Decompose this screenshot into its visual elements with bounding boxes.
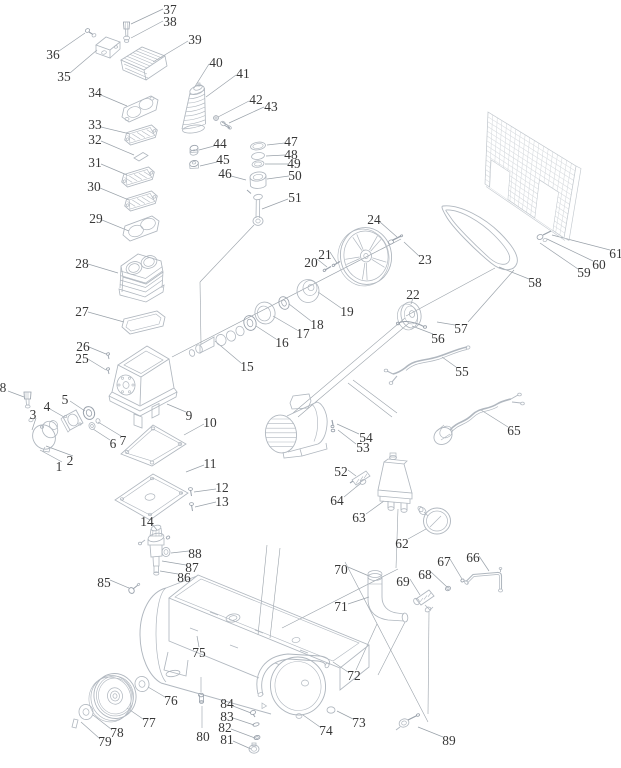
svg-text:10: 10 [203,415,217,430]
svg-text:80: 80 [196,729,210,744]
svg-text:88: 88 [188,546,202,561]
svg-text:20: 20 [304,255,318,270]
svg-text:72: 72 [347,668,360,683]
svg-text:73: 73 [352,715,366,730]
svg-text:59: 59 [577,265,591,280]
svg-text:28: 28 [75,256,89,271]
svg-text:26: 26 [76,339,90,354]
svg-text:64: 64 [330,493,344,508]
svg-text:8: 8 [0,380,7,395]
svg-text:36: 36 [46,47,60,62]
svg-text:18: 18 [310,317,324,332]
svg-text:39: 39 [188,32,202,47]
svg-text:24: 24 [367,212,381,227]
svg-text:16: 16 [275,335,289,350]
svg-text:52: 52 [334,464,347,479]
svg-text:27: 27 [75,304,89,319]
svg-text:15: 15 [240,359,254,374]
svg-text:84: 84 [220,696,234,711]
svg-text:13: 13 [215,494,229,509]
svg-text:67: 67 [437,554,451,569]
svg-text:50: 50 [288,168,302,183]
svg-text:65: 65 [507,423,521,438]
svg-text:2: 2 [67,453,74,468]
svg-text:71: 71 [334,599,347,614]
svg-text:69: 69 [396,574,410,589]
svg-text:87: 87 [185,560,199,575]
svg-text:41: 41 [236,66,249,81]
svg-text:6: 6 [110,436,117,451]
svg-text:34: 34 [88,85,102,100]
svg-text:12: 12 [215,480,228,495]
svg-text:75: 75 [192,645,206,660]
svg-text:42: 42 [249,92,262,107]
svg-text:35: 35 [57,69,71,84]
svg-text:19: 19 [340,304,354,319]
svg-text:61: 61 [609,246,621,261]
svg-text:46: 46 [218,166,232,181]
svg-text:89: 89 [442,733,456,748]
svg-text:4: 4 [44,399,51,414]
svg-text:62: 62 [395,536,408,551]
svg-text:77: 77 [142,715,156,730]
svg-text:22: 22 [406,287,419,302]
svg-text:23: 23 [418,252,432,267]
svg-text:56: 56 [431,331,445,346]
svg-text:45: 45 [216,152,230,167]
svg-text:51: 51 [288,190,301,205]
svg-text:44: 44 [213,136,227,151]
svg-text:33: 33 [88,117,102,132]
svg-text:30: 30 [87,179,101,194]
svg-text:1: 1 [56,459,63,474]
svg-text:85: 85 [97,575,111,590]
svg-text:31: 31 [88,155,101,170]
svg-text:21: 21 [318,247,331,262]
svg-text:32: 32 [88,132,101,147]
svg-text:14: 14 [140,514,154,529]
svg-text:43: 43 [264,99,278,114]
svg-text:66: 66 [466,550,480,565]
svg-text:70: 70 [334,562,348,577]
svg-text:83: 83 [220,709,234,724]
svg-text:76: 76 [164,693,178,708]
svg-text:29: 29 [89,211,103,226]
svg-text:54: 54 [359,430,373,445]
svg-text:3: 3 [30,407,37,422]
svg-text:40: 40 [209,55,223,70]
svg-text:57: 57 [454,321,468,336]
svg-text:9: 9 [186,408,193,423]
svg-text:11: 11 [204,456,217,471]
svg-text:68: 68 [418,567,432,582]
svg-text:60: 60 [592,257,606,272]
svg-text:78: 78 [110,725,124,740]
svg-text:55: 55 [455,364,469,379]
svg-text:5: 5 [62,392,69,407]
svg-text:58: 58 [528,275,542,290]
svg-text:17: 17 [296,326,310,341]
svg-text:79: 79 [98,734,112,749]
svg-text:7: 7 [120,433,127,448]
svg-text:38: 38 [163,14,177,29]
svg-text:63: 63 [352,510,366,525]
svg-text:74: 74 [319,723,333,738]
